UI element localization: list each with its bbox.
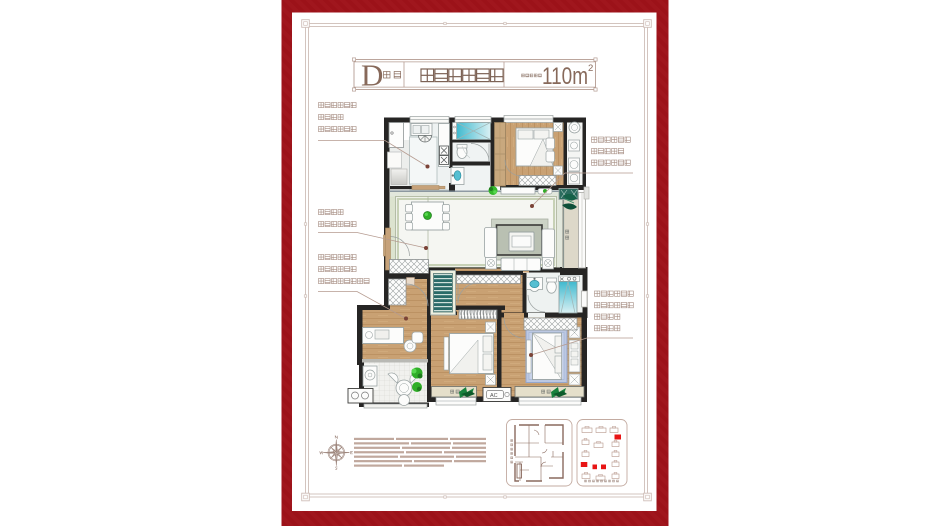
svg-text:AC: AC bbox=[490, 393, 498, 399]
svg-text:2: 2 bbox=[588, 63, 593, 74]
svg-text:110m: 110m bbox=[542, 63, 588, 90]
svg-text:D: D bbox=[361, 58, 383, 93]
